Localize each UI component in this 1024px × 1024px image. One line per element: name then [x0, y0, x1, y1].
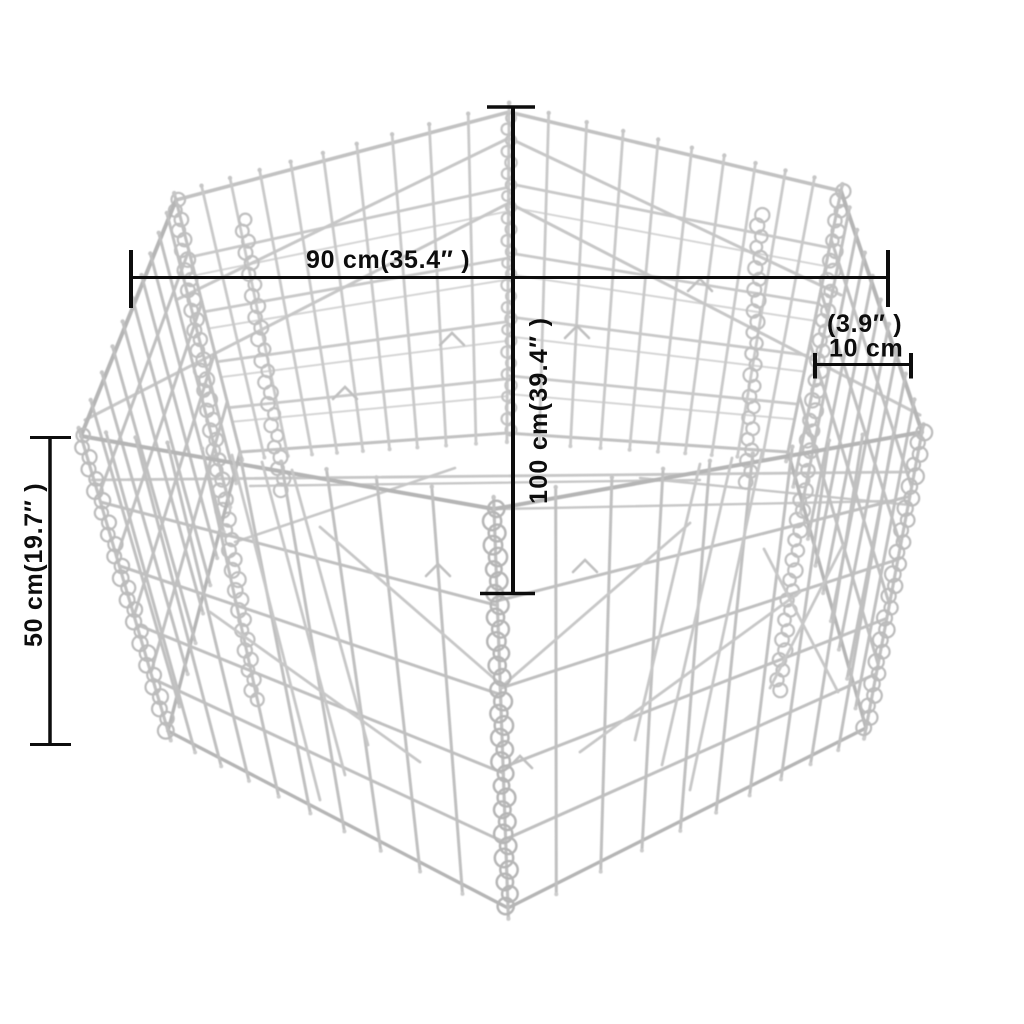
svg-text:100 cm(39.4″ ): 100 cm(39.4″ ): [525, 317, 553, 504]
svg-text:10 cm: 10 cm: [829, 335, 903, 363]
svg-text:50 cm(19.7″ ): 50 cm(19.7″ ): [20, 483, 48, 647]
svg-text:90 cm(35.4″ ): 90 cm(35.4″ ): [306, 246, 470, 274]
